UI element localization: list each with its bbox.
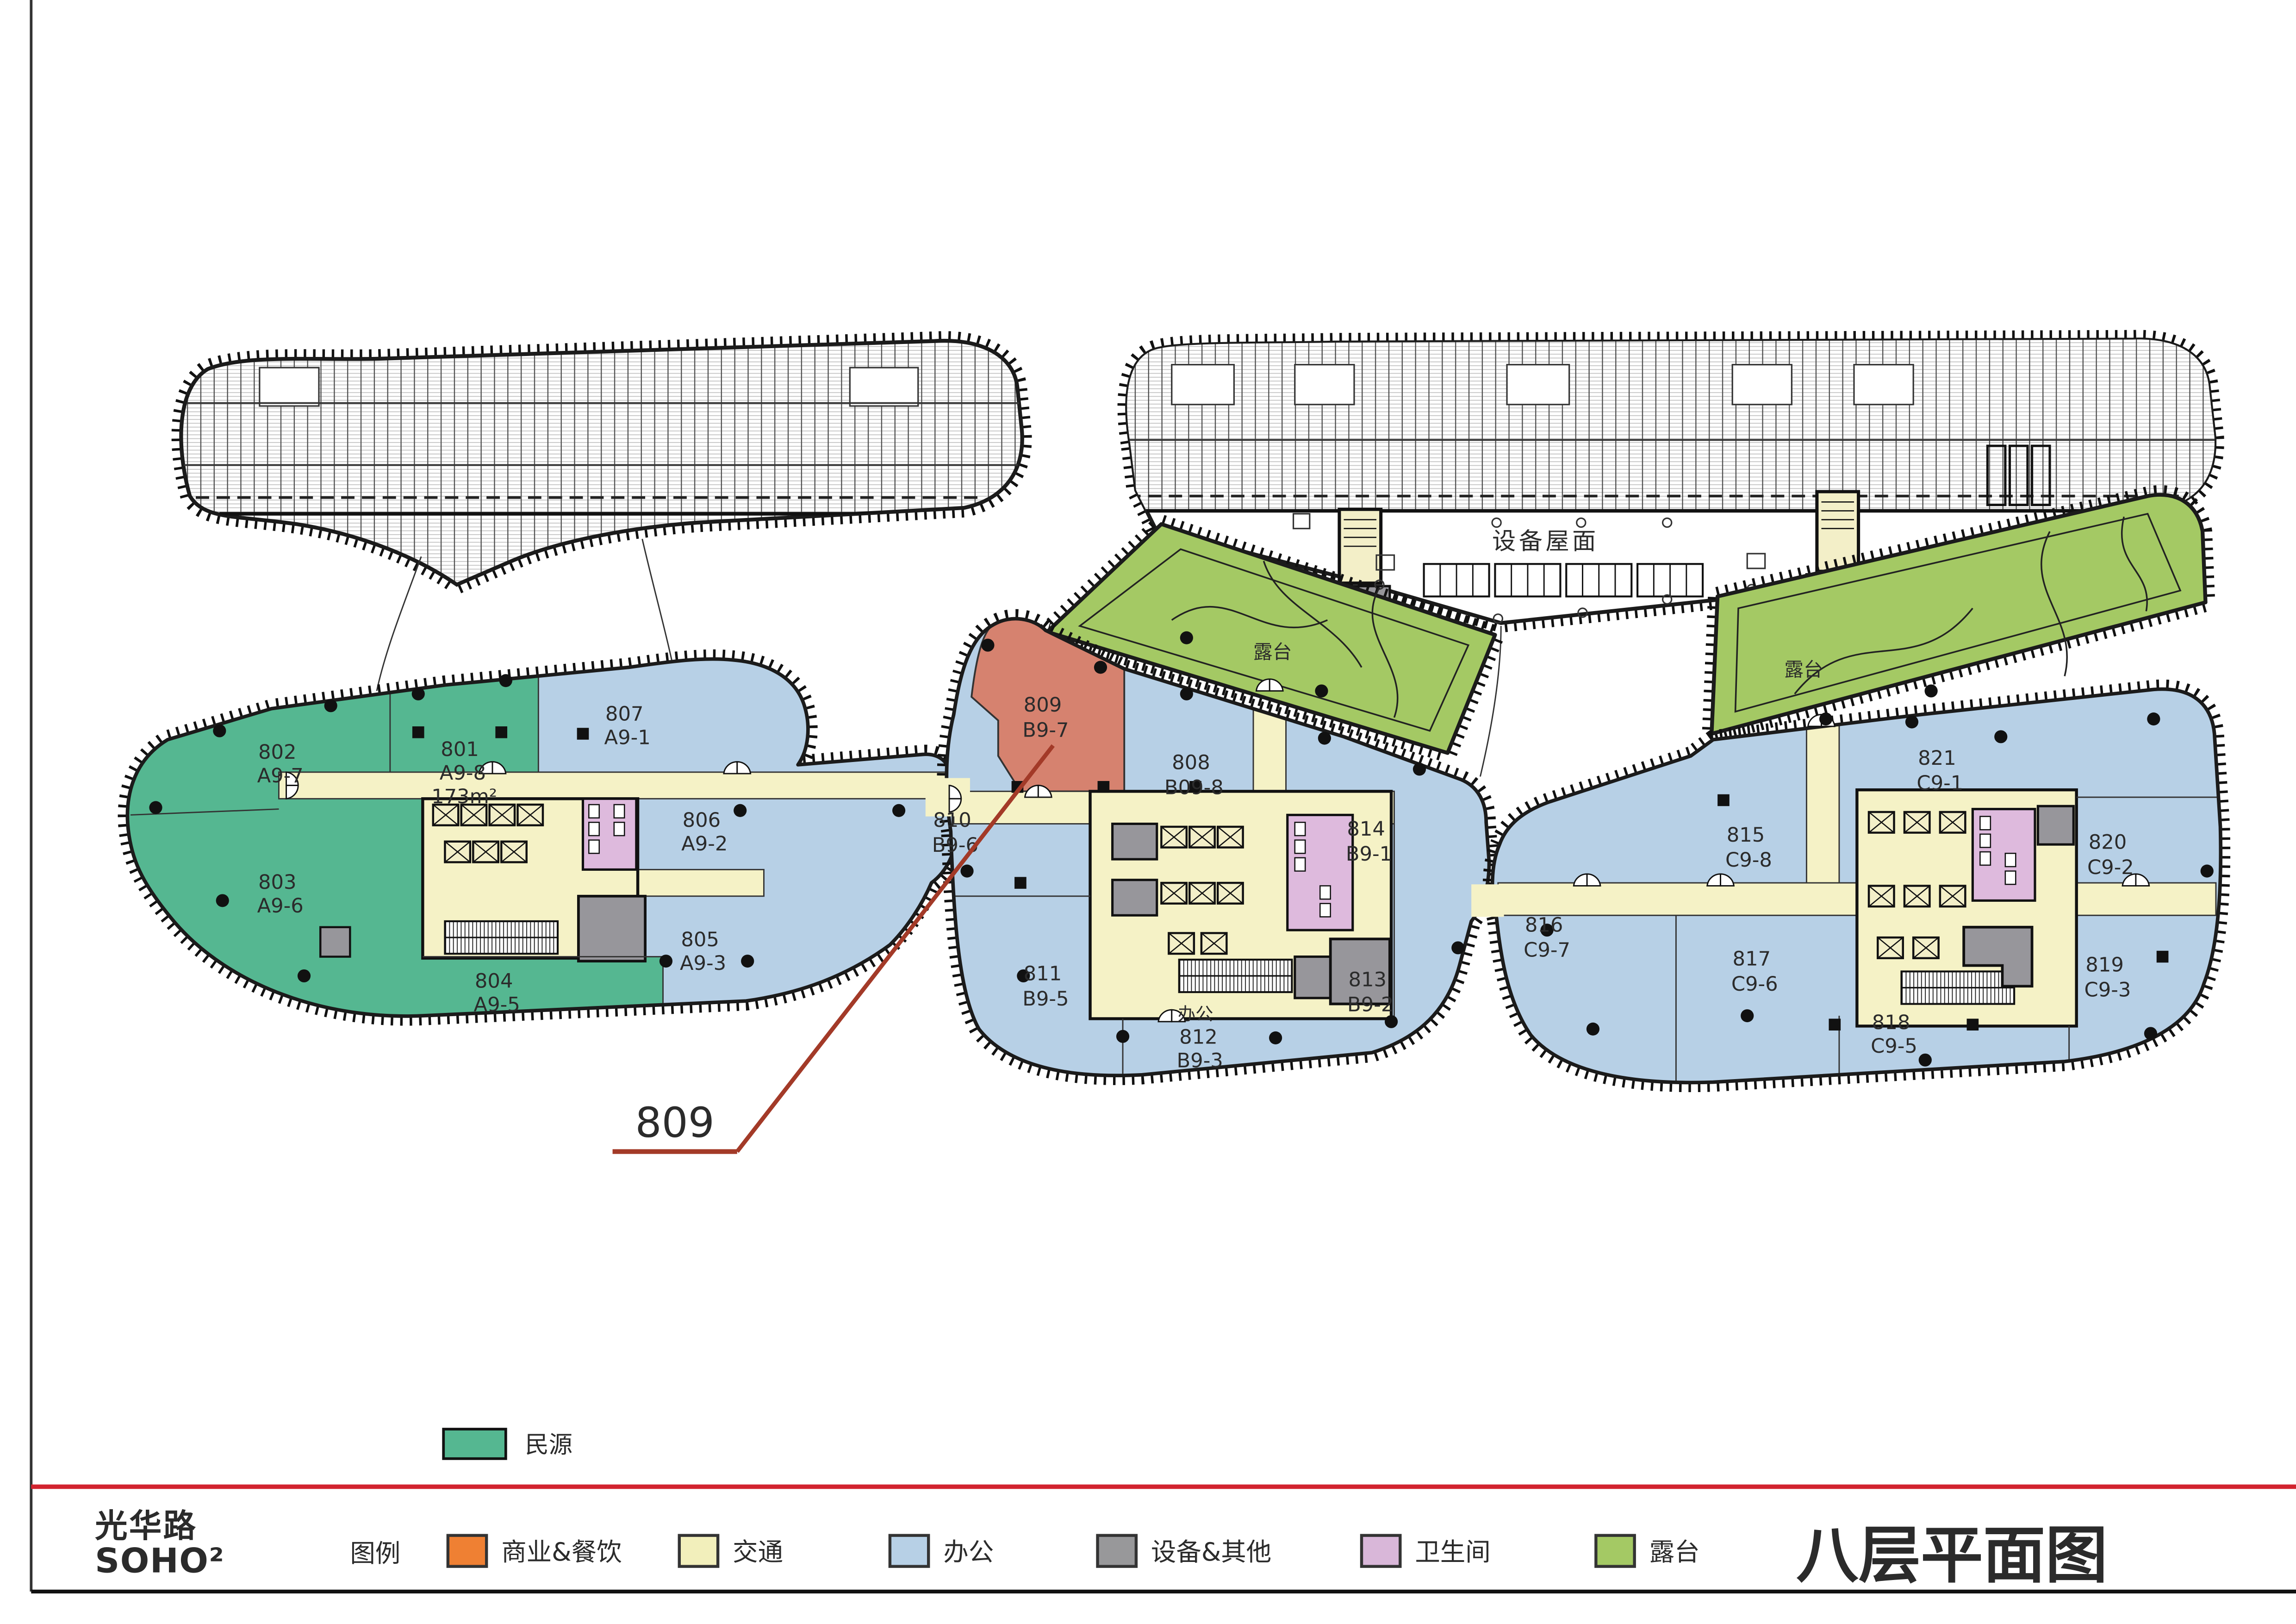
equipment-room	[1295, 957, 1333, 998]
room-label-819: 819	[2085, 954, 2124, 977]
room-label-801: 801	[441, 738, 479, 761]
building-C-plate	[1483, 672, 2225, 1100]
minyuan-label: 民源	[525, 1431, 572, 1459]
room-label-821: 821	[1918, 747, 1956, 770]
room-prefix-812: 办公	[1178, 1004, 1213, 1025]
room-code-809: B9-7	[1022, 718, 1069, 742]
column-dot	[1180, 687, 1193, 700]
equipment-roof-label: 设备屋面	[1492, 528, 1599, 555]
column-dot	[741, 955, 754, 968]
column-dot	[149, 801, 162, 814]
roof-cutout	[1732, 365, 1792, 405]
louver-box	[1424, 564, 1489, 596]
legend-swatch-office	[890, 1536, 928, 1567]
stairs	[1902, 971, 2015, 1004]
equipment-room	[579, 896, 645, 961]
room-code-817: C9-6	[1731, 973, 1778, 996]
column-dot	[981, 639, 994, 652]
elevator	[1904, 812, 1929, 833]
room-code-802: A9-7	[257, 764, 304, 787]
column-dot	[1180, 631, 1193, 644]
room-label-804: 804	[475, 970, 513, 993]
room-code-818: C9-5	[1871, 1035, 1917, 1058]
room-label-820: 820	[2089, 831, 2127, 854]
elevator	[1869, 812, 1894, 833]
column-dot	[2144, 1027, 2157, 1040]
equipment-room	[1113, 880, 1157, 916]
legend-swatch-traffic	[679, 1536, 718, 1567]
column-dot	[1819, 712, 1832, 725]
elevator	[1161, 827, 1186, 848]
room-code-805: A9-3	[680, 952, 726, 975]
column-dot	[1994, 730, 2007, 743]
floor-plan-svg: 设备屋面	[0, 0, 2296, 1624]
room-label-809: 809	[1024, 693, 1062, 717]
column-dot	[1587, 1023, 1599, 1036]
corridor-bridge	[1471, 884, 1504, 917]
column-square	[1014, 877, 1027, 889]
elevator	[1161, 883, 1186, 904]
terrace-right-label: 露台	[1784, 658, 1823, 681]
room-label-805: 805	[681, 928, 719, 951]
room-code-819: C9-3	[2084, 979, 2131, 1002]
column-dot	[216, 894, 229, 907]
column-dot	[734, 804, 747, 817]
room-label-813: 813	[1349, 968, 1387, 991]
stairs	[1179, 960, 1292, 992]
tower-facade-line	[377, 556, 421, 691]
room-label-817: 817	[1733, 948, 1771, 971]
elevator	[1904, 886, 1929, 906]
legend-label-traffic: 交通	[733, 1537, 783, 1567]
column-dot	[892, 804, 905, 817]
legend-label-equipment: 设备&其他	[1151, 1537, 1271, 1567]
elevator	[1189, 883, 1214, 904]
column-dot	[660, 955, 672, 968]
column-square	[495, 726, 507, 738]
room-label-812: 812	[1179, 1026, 1218, 1049]
column-square	[1829, 1018, 1841, 1031]
callout-label: 809	[635, 1099, 715, 1147]
column-square	[2157, 951, 2169, 963]
column-dot	[1269, 1031, 1282, 1044]
column-dot	[1919, 1054, 1932, 1067]
elevator	[1189, 827, 1214, 848]
legend-label-restroom: 卫生间	[1415, 1537, 1490, 1567]
elevator	[1940, 812, 1965, 833]
room-code-813: B9-2	[1347, 993, 1394, 1017]
room-label-803: 803	[258, 871, 297, 894]
elevator	[1869, 886, 1894, 906]
column-dot	[1318, 732, 1331, 745]
page-title: 八层平面图	[1796, 1519, 2108, 1592]
stairs	[445, 921, 558, 954]
room-code-820: C9-2	[2087, 856, 2134, 879]
louver-box	[1566, 564, 1631, 596]
room-label-802: 802	[258, 741, 297, 764]
roof-cutout	[1172, 365, 1234, 405]
room-code-821: C9-1	[1916, 772, 1963, 795]
column-dot	[1741, 1009, 1754, 1022]
legend-label-terrace: 露台	[1649, 1537, 1700, 1567]
room-label-806: 806	[683, 809, 721, 832]
elevator	[445, 842, 470, 862]
roof-cutout	[1854, 365, 1913, 405]
room-code-804: A9-5	[473, 993, 520, 1017]
legend-title: 图例	[350, 1539, 400, 1568]
elevator	[473, 842, 498, 862]
roof-cutout	[850, 368, 918, 406]
terrace-left-label: 露台	[1253, 640, 1292, 663]
room-label-811: 811	[1024, 962, 1062, 986]
elevator	[1218, 883, 1243, 904]
column-dot	[499, 674, 512, 687]
column-dot	[1925, 684, 1938, 697]
room-code-803: A9-6	[257, 894, 304, 918]
equipment-room	[1113, 824, 1157, 860]
legend-swatch-commerce	[448, 1536, 486, 1567]
legend-label-office: 办公	[943, 1537, 994, 1567]
legend-label-commerce: 商业&餐饮	[501, 1537, 622, 1567]
column-square	[1967, 1018, 1979, 1031]
room-code-816: C9-7	[1524, 939, 1570, 962]
column-dot	[324, 699, 337, 712]
building-A-plate	[118, 650, 979, 1033]
elevator	[501, 842, 526, 862]
roof-hatch-band	[1120, 332, 2225, 511]
elevator	[1201, 933, 1226, 954]
column-dot	[298, 969, 311, 982]
room-code-812: B9-3	[1177, 1049, 1223, 1073]
elevator	[517, 805, 542, 825]
room-label-808: 808	[1172, 751, 1210, 775]
floor-plan-page: 设备屋面	[0, 0, 2296, 1624]
column-square	[577, 728, 589, 740]
room-code-801: A9-8	[440, 762, 486, 785]
corridor	[279, 772, 953, 799]
column-dot	[1413, 762, 1426, 775]
roof-northwest	[181, 341, 1026, 691]
column-dot	[960, 865, 973, 878]
equipment-room	[2038, 806, 2073, 844]
room-code-814: B9-1	[1346, 843, 1392, 866]
room-label-810: 810	[933, 809, 971, 832]
roof-cutout	[260, 368, 319, 406]
room-label-815: 815	[1727, 824, 1765, 847]
logo-line2: SOHO²	[95, 1542, 224, 1581]
column-dot	[1116, 1030, 1129, 1043]
corridor	[1806, 719, 1839, 883]
column-dot	[1451, 941, 1464, 954]
column-dot	[1905, 715, 1918, 728]
column-dot	[1385, 1015, 1398, 1028]
column-dot	[1315, 684, 1328, 697]
legend-swatch-equipment	[1098, 1536, 1136, 1567]
column-square	[412, 726, 424, 738]
column-dot	[412, 687, 425, 700]
elevator	[1169, 933, 1194, 954]
louver-box	[1495, 564, 1560, 596]
room-label-814: 814	[1347, 818, 1385, 841]
room-area-801: 173m²	[431, 785, 497, 808]
room-code-808: B09-8	[1164, 776, 1224, 800]
column-dot	[2201, 865, 2214, 878]
room-label-816: 816	[1525, 913, 1563, 937]
elevator	[1940, 886, 1965, 906]
elevator	[1913, 937, 1938, 958]
room-code-815: C9-8	[1725, 849, 1772, 872]
legend-swatch-terrace	[1596, 1536, 1634, 1567]
elevator	[1218, 827, 1243, 848]
room-code-807: A9-1	[604, 726, 651, 749]
room-code-806: A9-2	[681, 832, 728, 856]
room-label-818: 818	[1872, 1011, 1910, 1034]
louver-box	[1637, 564, 1703, 596]
room-code-811: B9-5	[1022, 987, 1069, 1011]
column-dot	[213, 725, 226, 737]
column-square	[1717, 794, 1730, 806]
column-dot	[2147, 712, 2160, 725]
room-label-807: 807	[605, 702, 644, 725]
column-square	[1098, 781, 1110, 793]
logo-line1: 光华路	[95, 1507, 197, 1545]
roof-cutout	[1295, 365, 1354, 405]
elevator	[1878, 937, 1903, 958]
legend-swatch-restroom	[1362, 1536, 1400, 1567]
column-dot	[1094, 661, 1107, 674]
minyuan-swatch	[443, 1429, 506, 1459]
equipment-room	[320, 927, 350, 957]
roof-cutout	[1507, 365, 1569, 405]
